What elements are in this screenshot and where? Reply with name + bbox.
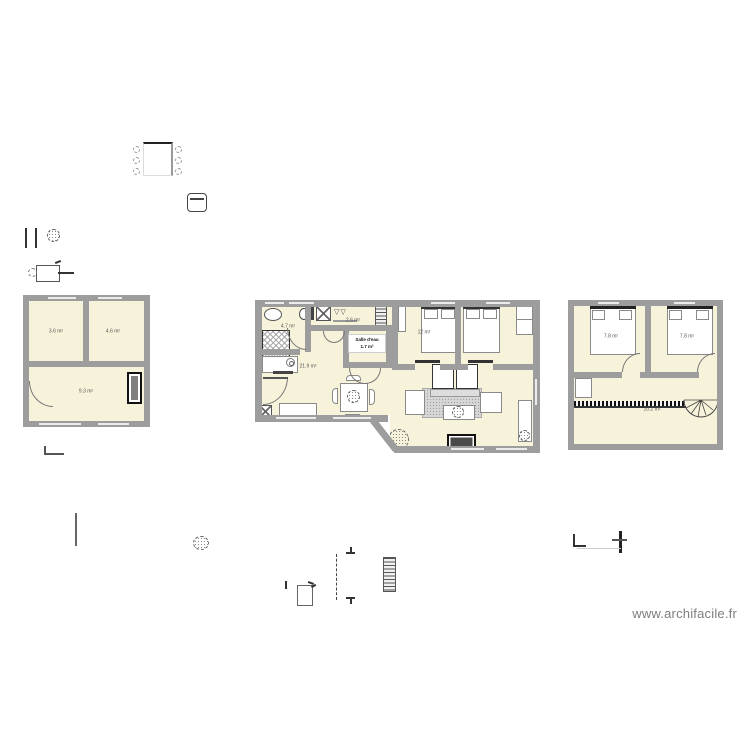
plant-icon[interactable] — [193, 536, 209, 550]
wall-stub[interactable] — [44, 446, 46, 453]
armchair-icon[interactable] — [187, 193, 207, 212]
bookshelf-icon[interactable] — [383, 557, 396, 592]
wall-stub[interactable] — [612, 539, 627, 541]
armchair-back — [190, 198, 204, 200]
plant-icon[interactable] — [47, 229, 60, 242]
watermark: www.archifacile.fr — [632, 606, 737, 621]
wall-stub[interactable] — [58, 272, 74, 274]
guide-line — [577, 548, 621, 549]
loose-items — [0, 0, 750, 750]
chair-icon[interactable] — [28, 268, 37, 277]
dimension-cap — [350, 599, 352, 604]
wall-stub[interactable] — [25, 228, 27, 248]
chair-icon[interactable] — [175, 146, 182, 153]
wall-stub[interactable] — [573, 545, 586, 547]
dimension-cap — [346, 552, 355, 554]
wall-stub[interactable] — [285, 581, 287, 589]
desk-icon[interactable] — [36, 265, 60, 282]
chair-icon[interactable] — [175, 168, 182, 175]
mark — [55, 260, 61, 264]
mark — [311, 584, 316, 588]
dimension-cap — [350, 547, 352, 552]
wall-stub[interactable] — [44, 453, 64, 455]
box-icon[interactable] — [297, 585, 313, 606]
wall-stub[interactable] — [619, 531, 622, 553]
chair-icon[interactable] — [133, 157, 140, 164]
table-icon[interactable] — [143, 142, 173, 176]
chair-icon[interactable] — [175, 157, 182, 164]
wall-stub[interactable] — [75, 513, 77, 546]
dimension-line[interactable] — [336, 554, 337, 600]
wall-stub[interactable] — [35, 228, 37, 248]
chair-icon[interactable] — [133, 168, 140, 175]
chair-icon[interactable] — [133, 146, 140, 153]
floorplan-canvas[interactable]: 3.6 m² 4.6 m² 9.3 m² ▽▽ — [0, 0, 750, 750]
